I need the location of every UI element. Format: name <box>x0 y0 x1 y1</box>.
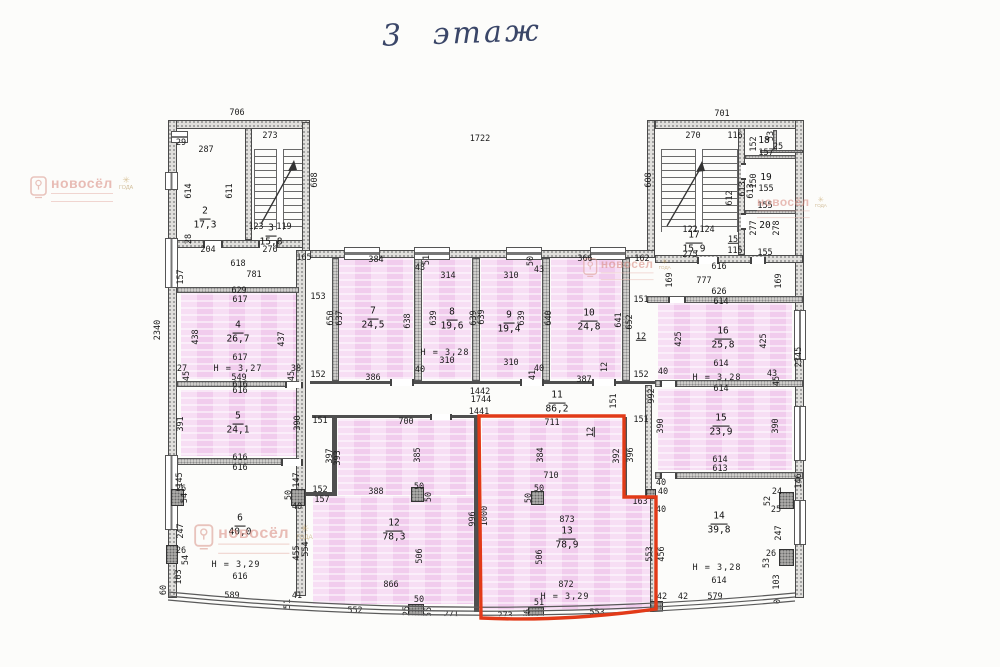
room-label-17: 1715,9 <box>683 231 706 256</box>
room-area: 39,8 <box>708 525 731 537</box>
dimension-label: 153 <box>310 293 325 302</box>
door-opening <box>697 257 719 264</box>
dimension-label: 2340 <box>154 320 163 340</box>
thin-wall <box>332 418 337 496</box>
partition-wall <box>655 380 803 387</box>
dimension-label: 701 <box>714 110 729 119</box>
novosel-logo-icon <box>194 524 214 550</box>
door-opening <box>741 213 746 230</box>
column <box>779 549 794 566</box>
column <box>779 492 794 509</box>
dimension-label: 155 <box>757 202 772 211</box>
window-sill <box>344 247 380 260</box>
paper-mask <box>168 601 795 667</box>
door-opening <box>668 297 686 303</box>
partition-wall <box>760 150 803 153</box>
staircase-left-divider <box>276 149 284 230</box>
wall <box>650 498 657 608</box>
door-opening <box>660 381 677 387</box>
dimension-label: 169 <box>775 273 784 288</box>
door-opening <box>430 414 452 420</box>
dimension-label: 169 <box>666 272 675 287</box>
novosel-logo-icon <box>30 176 47 199</box>
room-8-fill <box>423 258 471 379</box>
column <box>411 487 424 502</box>
plan-structure <box>36 180 41 185</box>
dimension-label: 777 <box>696 277 711 286</box>
wall <box>177 240 303 248</box>
watermark-brand: новосёл <box>51 176 113 190</box>
wall-niche <box>171 131 188 143</box>
wall <box>168 120 310 129</box>
plan-structure <box>466 623 481 641</box>
dimension-label: 614 <box>185 183 194 198</box>
plan-structure: ГОДА <box>659 266 671 272</box>
dimension-label: 152 <box>633 371 648 380</box>
plan-structure: новосёл <box>218 524 289 554</box>
dimension-label: 277 <box>750 220 759 235</box>
novosel-watermark: новосёл✳ГОДА <box>465 622 568 648</box>
room-area: 17,3 <box>194 220 217 232</box>
watermark-subtitle-lines <box>218 544 289 554</box>
dimension-label: 271 <box>443 611 458 620</box>
wall <box>647 120 655 251</box>
watermark-subtitle-lines <box>486 639 548 648</box>
dimension-label: 1744 <box>471 396 491 405</box>
column <box>528 607 544 621</box>
dimension-label: 616 <box>232 464 247 473</box>
novosel-logo-icon <box>465 622 482 645</box>
dimension-label: 151 <box>610 393 619 408</box>
room-label-2: 217,3 <box>194 207 217 232</box>
dimension-label: 150 <box>750 173 759 188</box>
room-label-14: 1439,8 <box>708 512 731 537</box>
watermark-badge: ✳ГОДА <box>554 622 568 638</box>
window-sill <box>414 247 450 260</box>
dimension-label: 152 <box>750 136 759 151</box>
dimension-label: 40 <box>656 479 666 488</box>
dimension-label: 40 <box>656 506 666 515</box>
window <box>165 238 178 288</box>
dimension-label: 278 <box>773 220 782 235</box>
dimension-label: 60 <box>160 585 169 595</box>
plan-structure <box>200 535 208 549</box>
door-opening <box>660 473 677 479</box>
dimension-label: 579 <box>707 593 722 602</box>
room-label-11: 1186,2 <box>546 391 569 416</box>
dimension-label: 54 <box>182 555 191 565</box>
dimension-label: 51 <box>284 599 293 609</box>
room-number: 20 <box>756 221 773 233</box>
room-7-fill <box>339 258 413 379</box>
window <box>794 406 806 461</box>
room-label-18: 18 <box>755 136 772 148</box>
dimension-label: 273 <box>262 132 277 141</box>
column <box>166 545 178 564</box>
partition-wall <box>332 258 339 381</box>
plan-structure: ГОДА <box>815 204 827 210</box>
dimension-label: 103 <box>773 574 782 589</box>
dimension-label: 151 <box>312 417 327 426</box>
floor-title: 3 этаж <box>381 13 542 54</box>
dimension-label: 618 <box>230 260 245 269</box>
plan-structure <box>31 177 46 195</box>
room-number: 11 <box>548 391 565 404</box>
dimension-label: 270 <box>685 132 700 141</box>
column <box>408 604 424 618</box>
room-9-fill <box>481 258 541 379</box>
dimension-label: 157 <box>177 269 186 284</box>
room-12-fill-lower <box>313 496 474 604</box>
column <box>646 489 656 499</box>
room-16-fill <box>658 303 792 379</box>
column <box>291 489 305 506</box>
dimension-label: 26 <box>766 550 776 559</box>
dimension-label: 15 <box>728 236 738 245</box>
wall <box>738 128 745 255</box>
partition-wall <box>542 258 550 381</box>
door-opening <box>741 163 746 180</box>
room-4-fill <box>181 293 297 379</box>
wall <box>645 385 652 498</box>
column <box>171 489 184 506</box>
window <box>794 310 806 360</box>
room-area: 40,0 <box>229 527 252 539</box>
partition-wall <box>414 258 422 381</box>
door-opening <box>285 382 303 388</box>
thin-wall <box>474 417 479 612</box>
wall <box>296 250 306 596</box>
wall <box>302 122 310 251</box>
dimension-label: 608 <box>311 172 320 187</box>
room-10-fill <box>551 258 621 379</box>
room-label-6: 640,0 <box>229 514 252 539</box>
dimension-label: 60 <box>774 599 783 609</box>
dimension-label: 706 <box>229 109 244 118</box>
window-sill <box>506 247 542 260</box>
dimension-label: 1442 <box>470 388 490 397</box>
plan-structure <box>201 529 207 535</box>
partition-wall <box>655 472 803 479</box>
dimension-label: 52 <box>764 496 773 506</box>
room-number: 18 <box>755 136 772 148</box>
partition-wall <box>177 287 299 293</box>
dimension-label: 40 <box>658 488 668 497</box>
watermark-badge: ✳ГОДА <box>119 176 133 192</box>
column <box>531 491 544 505</box>
dimension-label: 553 <box>589 609 604 618</box>
room-13-fill-lower <box>482 497 654 610</box>
dimension-label: 552 <box>347 607 362 616</box>
laurel-icon: ✳ <box>818 196 824 204</box>
room-area: 86,2 <box>546 404 569 416</box>
room-12-fill-upper <box>338 419 474 495</box>
thin-wall <box>624 417 627 498</box>
novosel-watermark: новосёл✳ГОДА <box>194 524 313 554</box>
dimension-label: 42 <box>678 593 688 602</box>
window <box>165 172 178 190</box>
dimension-label: 273 <box>497 612 512 621</box>
dimension-label: 247 <box>177 523 186 538</box>
dimension-label: 287 <box>198 146 213 155</box>
door-opening <box>520 379 544 386</box>
dimension-label: 616 <box>711 263 726 272</box>
room-number: 14 <box>710 512 727 525</box>
watermark-brand: новосёл <box>218 524 289 540</box>
dimension-label: 589 <box>224 592 239 601</box>
door-opening <box>390 379 414 386</box>
door-opening <box>592 379 616 386</box>
dimension-label: 614 <box>711 577 726 586</box>
dimension-label: 456 <box>658 546 667 561</box>
plan-structure <box>470 632 477 644</box>
plan-structure: новосёл <box>51 176 113 202</box>
dimension-label: 616 <box>232 573 247 582</box>
partition-wall <box>472 258 480 381</box>
dimension-label: 781 <box>246 271 261 280</box>
dimension-label: 613 <box>747 183 756 198</box>
watermark-badge: ✳ГОДА <box>815 196 827 209</box>
dimension-label: 12 <box>636 333 646 342</box>
staircase-right-divider <box>695 149 703 232</box>
plan-structure: ГОДА <box>554 631 568 638</box>
dimension-label: 611 <box>226 183 235 198</box>
wall <box>655 255 803 263</box>
plan-structure <box>471 626 476 631</box>
ceiling-height-label: H = 3,29 <box>212 561 261 570</box>
partition-wall <box>745 210 796 214</box>
dimension-label: 152 <box>310 371 325 380</box>
dimension-label: 626 <box>711 288 726 297</box>
partition-wall <box>745 155 796 159</box>
window-sill <box>590 247 626 260</box>
room-number: 6 <box>234 514 246 527</box>
floor-plan-sheet: 3 этаж <box>0 0 1000 667</box>
novosel-watermark: новосёл✳ГОДА <box>757 196 827 218</box>
door-opening <box>281 459 303 466</box>
room-15-fill <box>658 389 792 470</box>
watermark-brand: новосёл <box>486 622 548 636</box>
window <box>794 500 806 545</box>
room-label-20: 20 <box>756 221 773 233</box>
dimension-label: 53 <box>763 558 772 568</box>
ceiling-height-label: H = 3,28 <box>693 564 742 573</box>
door-opening <box>258 241 278 248</box>
dimension-label: 55 <box>425 607 434 617</box>
plan-structure: новосёл <box>486 622 548 648</box>
wall <box>245 128 252 240</box>
plan-structure <box>195 525 212 546</box>
room-label-19: 19 <box>757 173 774 185</box>
partition-wall <box>622 258 630 381</box>
room-number: 19 <box>757 173 774 185</box>
room-number: 17 <box>685 231 702 244</box>
dimension-label: 155 <box>758 185 773 194</box>
dimension-label: 1722 <box>470 135 490 144</box>
dimension-label: 396 <box>627 447 636 462</box>
column <box>650 601 663 612</box>
plan-structure: ГОДА <box>119 185 133 192</box>
plan-structure <box>35 186 42 198</box>
dimension-label: 247 <box>775 525 784 540</box>
dimension-label: 42 <box>657 593 667 602</box>
laurel-icon: ✳ <box>557 622 565 631</box>
novosel-watermark: новосёл✳ГОДА <box>30 176 133 202</box>
room-number: 2 <box>199 207 211 220</box>
room-area: 15,9 <box>683 244 706 256</box>
room-5-fill <box>181 390 297 456</box>
door-opening <box>203 241 223 248</box>
thin-wall <box>306 492 337 496</box>
watermark-subtitle-lines <box>51 193 113 202</box>
laurel-icon: ✳ <box>122 176 130 185</box>
partition-wall <box>177 381 299 387</box>
partition-wall <box>773 130 777 152</box>
door-opening <box>750 257 766 264</box>
room-13-fill-upper <box>482 419 622 497</box>
wall <box>655 120 803 129</box>
